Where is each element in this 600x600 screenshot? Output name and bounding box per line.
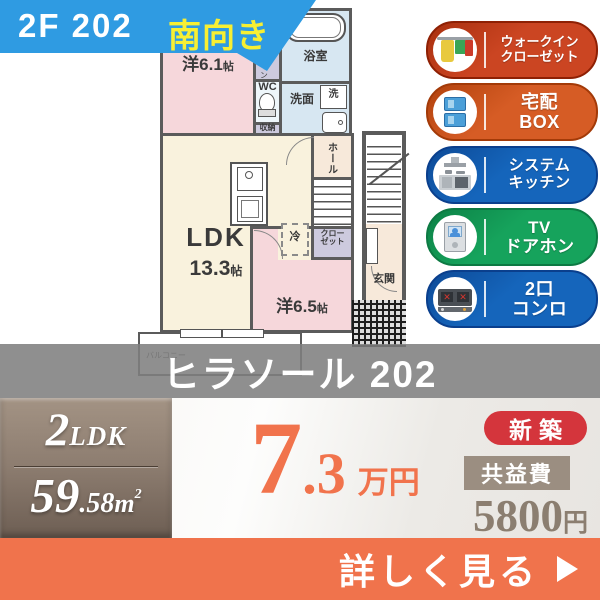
basin-dot xyxy=(338,120,343,125)
label-western1: 洋6.1帖 xyxy=(163,56,253,74)
label-wc: WC xyxy=(253,82,282,94)
building-name-band: ヒラソール 202 xyxy=(0,344,600,398)
label-western2: 洋6.5帖 xyxy=(258,298,346,316)
rent-decimal: .3 xyxy=(302,440,346,507)
label-ldk: LDK xyxy=(166,224,266,251)
badge-system-kitchen-label: システムキッチン xyxy=(491,158,596,192)
new-construction-badge: 新築 xyxy=(484,411,587,445)
label-entrance: 玄関 xyxy=(366,274,402,286)
kitchen-stove-inner xyxy=(241,200,259,218)
badge-two-burner-stove: ✕ ✕ 2口コンロ xyxy=(426,270,598,328)
badge-separator xyxy=(484,32,486,68)
badge-system-kitchen: システムキッチン xyxy=(426,146,598,204)
badge-walk-in-closet: ウォークインクローゼット xyxy=(426,21,598,79)
facing-direction: 南向き xyxy=(168,9,270,57)
rent-unit: 万円 xyxy=(358,457,420,502)
basin-fixture xyxy=(322,112,347,133)
label-closet: クローゼット xyxy=(311,230,354,247)
system-kitchen-icon xyxy=(433,153,477,197)
tv-doorphone-icon xyxy=(433,215,477,259)
toilet-tank xyxy=(258,109,276,117)
badge-delivery-box-label: 宅配BOX xyxy=(491,92,596,132)
common-fee-label: 共益費 xyxy=(464,456,570,490)
badge-two-burner-stove-label: 2口コンロ xyxy=(491,279,596,319)
layout-area-box: 2LDK 59.58m2 xyxy=(0,398,172,538)
building-name: ヒラソール 202 xyxy=(162,344,437,398)
property-listing-card: { "header": { "unit": "2F 202", "facing"… xyxy=(0,0,600,600)
stairs-internal xyxy=(311,177,354,229)
badge-delivery-box: 宅配BOX xyxy=(426,83,598,141)
summary-section: 2LDK 59.58m2 7.3万円 新築 共益費 5800円 xyxy=(0,398,600,538)
walk-in-closet-icon xyxy=(433,28,477,72)
shoe-cabinet xyxy=(366,228,378,264)
layout-label: 2LDK xyxy=(0,400,172,461)
label-storage: 収納 xyxy=(253,124,282,132)
label-fridge: 冷 xyxy=(281,232,309,244)
delivery-box-icon xyxy=(433,90,477,134)
details-button-label: 詳しく見る xyxy=(339,543,539,595)
area-label: 59.58m2 xyxy=(0,464,172,528)
label-ldk-size: 13.3帖 xyxy=(162,258,270,280)
two-burner-stove-icon: ✕ ✕ xyxy=(433,277,477,321)
balcony-door-tick xyxy=(221,329,223,338)
badge-tv-doorphone: TVドアホン xyxy=(426,208,598,266)
label-bath: 浴室 xyxy=(283,50,348,63)
badge-separator xyxy=(484,219,486,255)
rent-integer: 7 xyxy=(250,398,302,521)
badge-separator xyxy=(484,157,486,193)
label-washer: 洗 xyxy=(320,90,347,101)
kitchen-faucet-icon xyxy=(245,171,253,179)
arrow-right-icon xyxy=(557,556,578,582)
badge-separator xyxy=(484,281,486,317)
label-washroom: 洗面 xyxy=(281,93,323,106)
label-hall: ホール xyxy=(325,138,336,178)
entrance-porch-grid xyxy=(352,300,406,347)
common-fee-value: 5800円 xyxy=(420,490,588,542)
unit-number: 2F 202 xyxy=(18,7,133,45)
badge-separator xyxy=(484,94,486,130)
badge-walk-in-closet-label: ウォークインクローゼット xyxy=(491,35,596,64)
details-button[interactable]: 詳しく見る xyxy=(0,538,600,600)
badge-tv-doorphone-label: TVドアホン xyxy=(491,218,596,256)
